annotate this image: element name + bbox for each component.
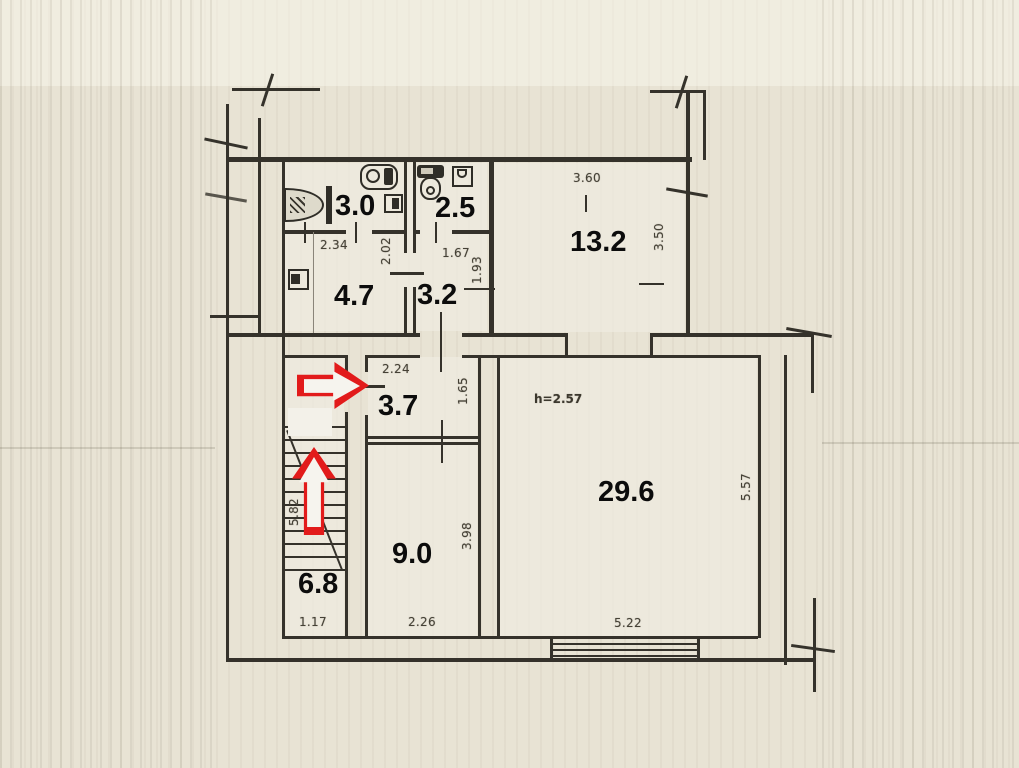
wall bbox=[345, 355, 348, 372]
sink-detail bbox=[392, 198, 399, 209]
door-tick bbox=[390, 272, 424, 275]
wall bbox=[282, 636, 758, 639]
scan-artifact-line bbox=[822, 442, 1019, 444]
wall bbox=[365, 442, 478, 445]
dimension-tick bbox=[464, 288, 495, 290]
wall bbox=[282, 230, 346, 234]
dim-label: 2.34 bbox=[320, 238, 348, 252]
wall bbox=[653, 333, 814, 337]
door-tick bbox=[355, 222, 357, 243]
wall bbox=[232, 88, 320, 91]
washing-machine-drum bbox=[366, 169, 380, 183]
ceiling-height-label: h=2.57 bbox=[534, 392, 582, 406]
wall bbox=[758, 355, 761, 638]
wall bbox=[413, 230, 420, 234]
floor-plan: 3.0 2.5 13.2 4.7 3.2 3.7 9.0 29.6 6.8 2.… bbox=[0, 0, 1019, 768]
scan-stripes-right bbox=[822, 0, 1019, 768]
dim-label: 2.02 bbox=[379, 237, 393, 265]
door-tick bbox=[441, 420, 443, 463]
wall bbox=[413, 287, 416, 335]
window-icon bbox=[553, 649, 697, 651]
room-label-wc: 2.5 bbox=[435, 192, 475, 225]
door-jamb bbox=[650, 333, 653, 357]
wall bbox=[404, 287, 407, 335]
dim-label: 1.17 bbox=[299, 615, 327, 629]
drain-hatch bbox=[290, 197, 305, 213]
room-label-staircase: 6.8 bbox=[298, 568, 338, 601]
wall bbox=[404, 160, 407, 253]
door-jamb bbox=[565, 333, 568, 357]
room-label-living-room: 29.6 bbox=[598, 476, 654, 509]
toilet-cistern-lid bbox=[421, 168, 433, 174]
dim-label: 2.24 bbox=[382, 362, 410, 376]
scan-stripes-left bbox=[0, 0, 218, 768]
wall bbox=[703, 90, 706, 160]
dim-label: 3.60 bbox=[573, 171, 601, 185]
window-icon bbox=[553, 643, 697, 645]
wall bbox=[462, 333, 567, 337]
partition bbox=[326, 186, 332, 224]
door-tick bbox=[435, 222, 437, 243]
wall bbox=[365, 415, 368, 638]
door-tick bbox=[440, 312, 442, 372]
wall bbox=[452, 230, 489, 234]
wall bbox=[210, 315, 258, 318]
wall bbox=[365, 355, 420, 358]
toilet-drain bbox=[426, 186, 435, 195]
dim-label: 2.26 bbox=[408, 615, 436, 629]
dim-label: 5.22 bbox=[614, 616, 642, 630]
wall bbox=[497, 355, 500, 638]
wall bbox=[489, 160, 494, 337]
wall bbox=[784, 355, 787, 665]
whiteout-patch bbox=[288, 408, 332, 436]
dim-label: 1.67 bbox=[442, 246, 470, 260]
wall bbox=[226, 157, 692, 162]
dim-label: 5.57 bbox=[739, 473, 753, 501]
wall bbox=[345, 412, 348, 638]
room-label-bathroom: 3.0 bbox=[335, 190, 375, 223]
wash-basin-bowl bbox=[457, 169, 467, 178]
room-label-hall-upper: 4.7 bbox=[334, 280, 374, 313]
dimension-tick bbox=[304, 222, 306, 243]
dimension-tick bbox=[585, 195, 587, 212]
dim-label: 3.50 bbox=[652, 223, 666, 251]
wall bbox=[811, 337, 814, 393]
room-label-corridor: 3.2 bbox=[417, 279, 457, 312]
wall bbox=[478, 355, 481, 638]
dimension-tick bbox=[639, 283, 664, 285]
window-jamb bbox=[697, 636, 700, 662]
wall bbox=[650, 90, 706, 93]
room-label-kitchen: 13.2 bbox=[570, 226, 626, 259]
duct-line bbox=[313, 232, 314, 333]
wall bbox=[258, 118, 261, 335]
wall bbox=[226, 333, 420, 337]
washing-machine-panel bbox=[384, 168, 393, 185]
wall bbox=[226, 104, 229, 660]
wall bbox=[365, 355, 368, 372]
dim-label: 1.93 bbox=[470, 256, 484, 284]
room-label-entry-hall: 3.7 bbox=[378, 390, 418, 423]
wall bbox=[462, 355, 758, 358]
dim-label: 1.65 bbox=[456, 377, 470, 405]
dim-label: 5.82 bbox=[287, 498, 301, 526]
wall bbox=[226, 658, 815, 662]
wall bbox=[365, 436, 478, 439]
wall bbox=[372, 230, 404, 234]
scan-artifact-line bbox=[0, 447, 215, 449]
window-icon bbox=[553, 655, 697, 657]
dim-label: 3.98 bbox=[460, 522, 474, 550]
wall bbox=[282, 355, 345, 358]
wall bbox=[686, 90, 690, 337]
wall bbox=[813, 598, 816, 692]
wall bbox=[413, 160, 416, 253]
cabinet-detail bbox=[291, 274, 300, 284]
room-label-inner-room: 9.0 bbox=[392, 538, 432, 571]
